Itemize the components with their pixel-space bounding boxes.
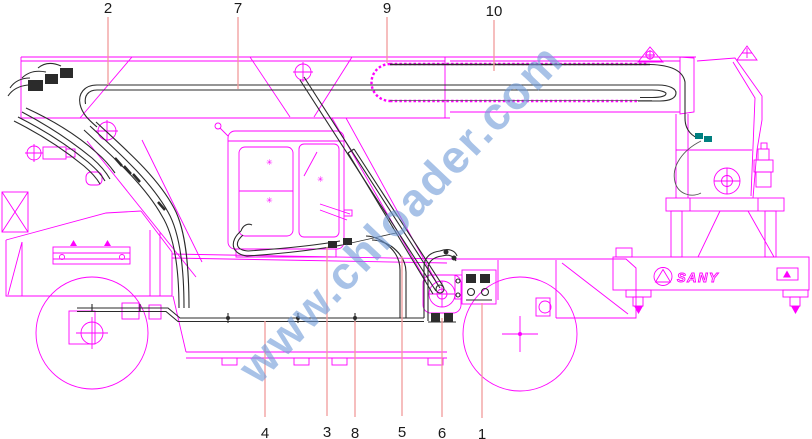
spreader-fittings: [695, 133, 712, 142]
spreader-mast: [666, 58, 784, 257]
callout-label-10: 10: [486, 3, 503, 20]
front-wheel: [463, 277, 577, 391]
boom-head-hoses: [650, 65, 701, 196]
wiper-icon: [304, 152, 317, 176]
glass-mark: ✳: [317, 175, 324, 184]
rear-hose-connectors: [8, 64, 73, 96]
callout-label-8: 8: [351, 425, 359, 439]
glass-mark: ✳: [266, 196, 273, 205]
callout-label-3: 3: [323, 424, 331, 439]
datum-mark-icon: [104, 240, 111, 246]
callout-label-4: 4: [261, 425, 269, 439]
mirror-icon: [215, 123, 221, 129]
rear-wheel: [36, 277, 148, 389]
callout-label-2: 2: [104, 0, 112, 17]
sany-logo-triangle-icon: [656, 270, 671, 283]
callout-label-6: 6: [438, 425, 446, 439]
callout-label-1: 1: [478, 426, 486, 439]
twistlock-pin-right: [791, 306, 800, 314]
warning-triangle-icon: [783, 271, 791, 278]
twistlock-pin-left: [634, 306, 643, 314]
cad-drawing-page: SANY ✳ ✳ ✳ 27910438561 www.chloader.com: [0, 0, 812, 439]
callout-label-9: 9: [383, 0, 391, 17]
diagram-canvas: SANY ✳ ✳ ✳ 27910438561 www.chloader.com: [0, 0, 812, 439]
datum-mark-icon: [70, 240, 77, 246]
glass-mark: ✳: [266, 158, 273, 167]
boom-structure: [21, 46, 757, 142]
watermark-text: www.chloader.com: [227, 33, 573, 394]
callout-label-7: 7: [234, 0, 242, 17]
chassis-hose-run: [77, 304, 424, 323]
callout-label-5: 5: [398, 424, 406, 439]
brand-label: SANY: [677, 270, 719, 285]
